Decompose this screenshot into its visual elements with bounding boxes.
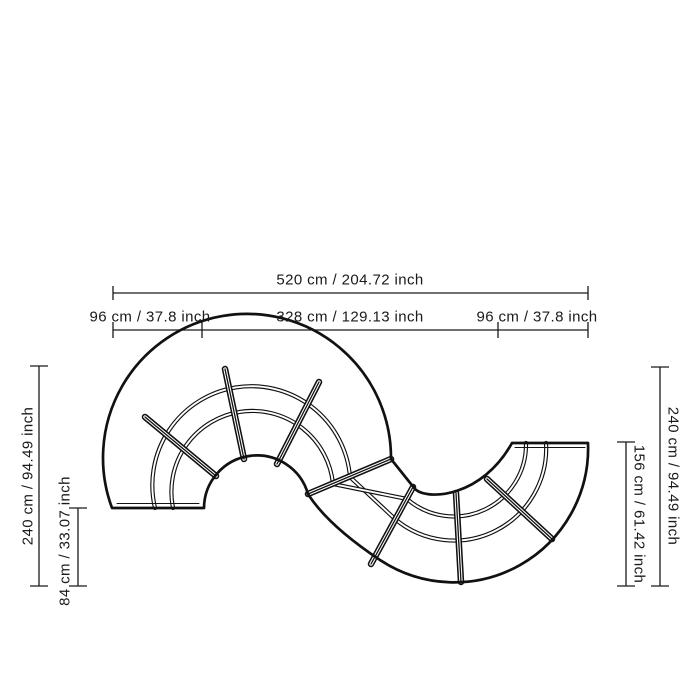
dim-label-right-end-depth: 156 cm / 61.42 inch — [631, 445, 648, 584]
sofa-top-view-drawing — [0, 0, 700, 700]
sofa-outline — [103, 314, 588, 582]
dim-label-right-section: 96 cm / 37.8 inch — [476, 309, 597, 326]
backrest-lines — [117, 386, 585, 540]
module-joint-line — [277, 382, 319, 464]
dim-label-left-end-depth: 84 cm / 33.07 inch — [57, 476, 74, 606]
dim-label-left-section: 96 cm / 37.8 inch — [89, 309, 210, 326]
dim-label-total-width: 520 cm / 204.72 inch — [276, 272, 423, 289]
module-joints — [145, 369, 552, 582]
dim-label-middle-section: 328 cm / 129.13 inch — [276, 309, 423, 326]
dim-label-left-depth: 240 cm / 94.49 inch — [20, 407, 37, 546]
dimension-lines — [30, 286, 669, 586]
dimension-drawing-page: 520 cm / 204.72 inch 96 cm / 37.8 inch 3… — [0, 0, 700, 700]
module-joint-line — [456, 493, 461, 582]
backrest-line-outer — [152, 386, 546, 540]
dim-label-right-depth: 240 cm / 94.49 inch — [665, 407, 682, 546]
